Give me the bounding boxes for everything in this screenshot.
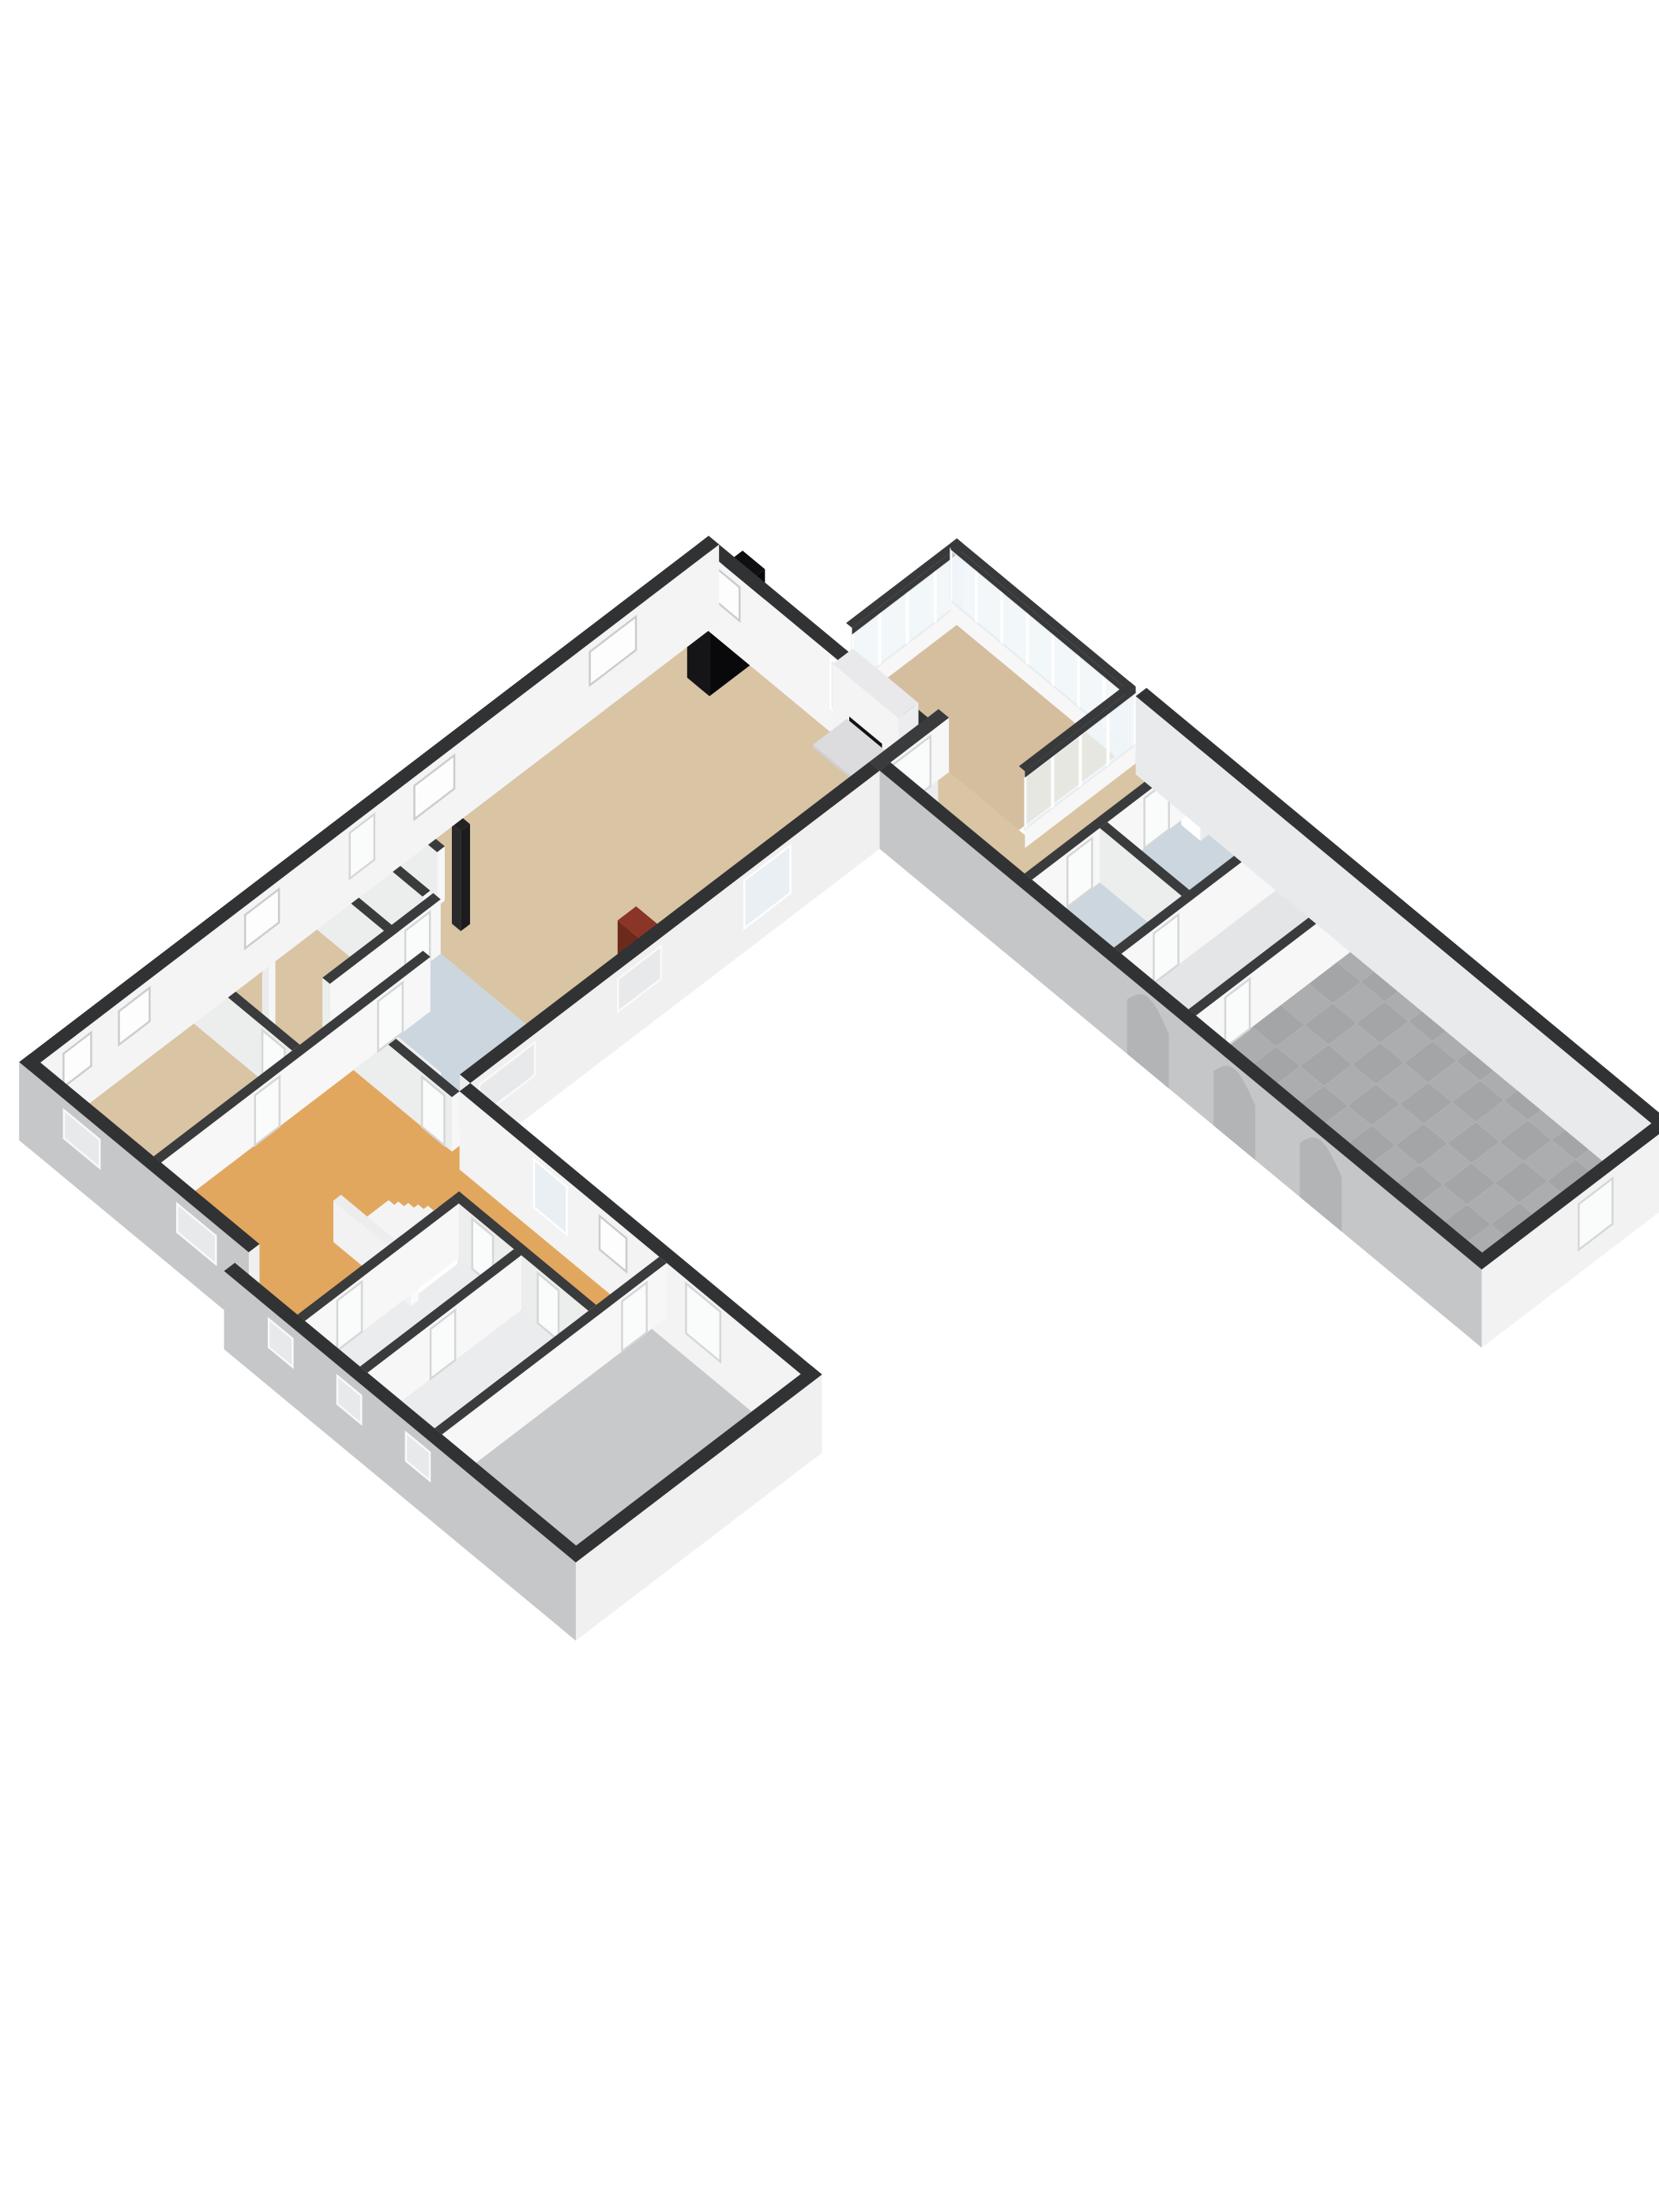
wall-se-garage-end-face-sw — [1471, 1261, 1481, 1348]
glass-conservatory-ne-mullion — [975, 570, 978, 623]
floorplan-3d-stage — [0, 0, 1659, 2212]
glass-conservatory-ne-mullion — [1026, 612, 1029, 666]
glass-conservatory-se-mullion — [1025, 777, 1026, 829]
floorplan-3d-rendering — [0, 0, 1659, 2212]
glass-conservatory-nw-mullion — [934, 570, 937, 623]
glass-conservatory-ne-mullion — [1051, 633, 1055, 687]
glass-conservatory-ne-mullion — [1000, 591, 1003, 645]
glass-conservatory-se-mullion — [1079, 734, 1082, 788]
glass-conservatory-se-mullion — [1134, 693, 1136, 745]
glass-conservatory-se-mullion — [1051, 755, 1055, 809]
stove-column-black-face-sw — [452, 824, 461, 931]
wall-se-bottom-wing-face-sw — [566, 1554, 576, 1641]
glass-conservatory-nw-mullion — [906, 591, 909, 645]
wall-kitchen-hall-face-se — [452, 1091, 460, 1151]
glass-conservatory-se-mullion — [1107, 713, 1110, 767]
glass-conservatory-ne-mullion — [951, 550, 953, 603]
stove-column-black-face-se — [461, 824, 470, 931]
glass-conservatory-nw-mullion — [878, 612, 882, 666]
glass-conservatory-ne-mullion — [1077, 654, 1080, 708]
